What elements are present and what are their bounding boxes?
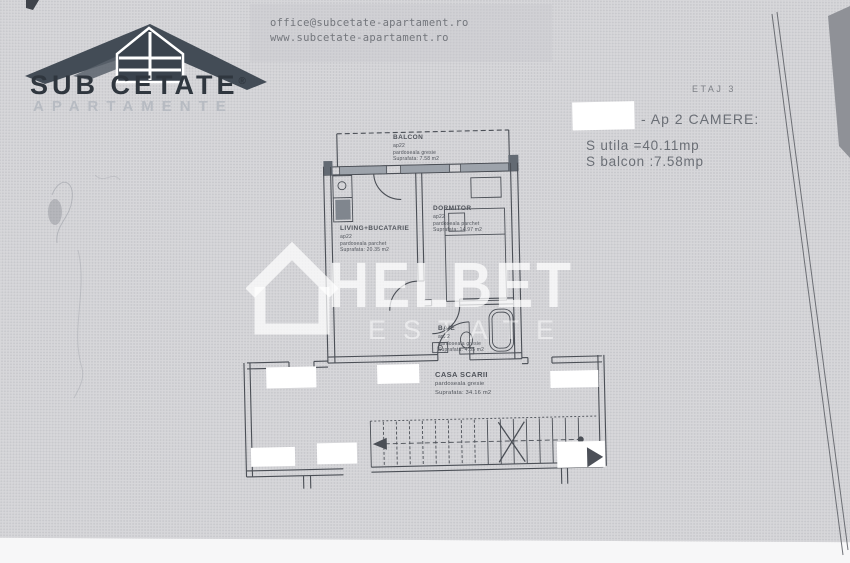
room-area: Suprafata: 14.97 m2	[433, 227, 482, 234]
room-area: Suprafata: 20.35 m2	[340, 247, 409, 254]
redaction-boxes	[243, 101, 642, 475]
contact-email: office@subcetate-apartament.ro	[270, 16, 469, 31]
room-flooring: pardoseala gresie	[438, 341, 484, 348]
room-label-living: LIVING+BUCATARIE ap22 pardoseala parchet…	[340, 225, 409, 254]
logo: SUB CETATE® APARTAMENTE	[15, 20, 285, 140]
room-unit: ap22	[340, 234, 409, 241]
room-name: BAIE	[438, 325, 484, 334]
room-flooring: pardoseala parchet	[340, 241, 409, 248]
room-label-casa-scarii: CASA SCARII pardoseala gresie Suprafata:…	[435, 370, 491, 398]
balcony-area-label: S balcon :7.58mp	[586, 154, 704, 169]
brand-name: SUB CETATE®	[30, 70, 246, 101]
room-unit: ap22	[393, 143, 439, 150]
room-area: Suprafata: 7.58 m2	[393, 156, 439, 163]
usable-area-label: S utila =40.11mp	[586, 138, 700, 153]
room-label-dormitor: DORMITOR ap22 pardoseala parchet Suprafa…	[433, 205, 482, 234]
registered-mark: ®	[239, 76, 246, 87]
room-area: Suprafata: 34.16 m2	[435, 389, 491, 398]
room-area: Suprafata: 4.85 m2	[438, 347, 484, 354]
room-flooring: pardoseala gresie	[435, 380, 491, 389]
contact-block: office@subcetate-apartament.ro www.subce…	[270, 16, 469, 46]
plan-drawing	[238, 101, 643, 491]
room-name: CASA SCARII	[435, 370, 491, 380]
room-flooring: pardoseala gresie	[393, 150, 439, 157]
brand-tagline: APARTAMENTE	[33, 98, 234, 115]
contact-website: www.subcetate-apartament.ro	[270, 31, 469, 46]
apartment-label: - Ap 2 CAMERE:	[641, 111, 759, 127]
room-name: BALCON	[393, 134, 439, 143]
scanned-document: SUB CETATE® APARTAMENTE office@subcetate…	[0, 0, 850, 563]
room-unit: ap22	[438, 334, 484, 341]
room-name: LIVING+BUCATARIE	[340, 225, 409, 234]
brand-name-text: SUB CETATE	[30, 70, 239, 100]
room-label-baie: BAIE ap22 pardoseala gresie Suprafata: 4…	[438, 325, 484, 354]
room-label-balcon: BALCON ap22 pardoseala gresie Suprafata:…	[393, 134, 439, 163]
floor-label: ETAJ 3	[692, 84, 736, 94]
room-name: DORMITOR	[433, 205, 482, 214]
room-flooring: pardoseala parchet	[433, 221, 482, 228]
room-unit: ap22	[433, 214, 482, 221]
